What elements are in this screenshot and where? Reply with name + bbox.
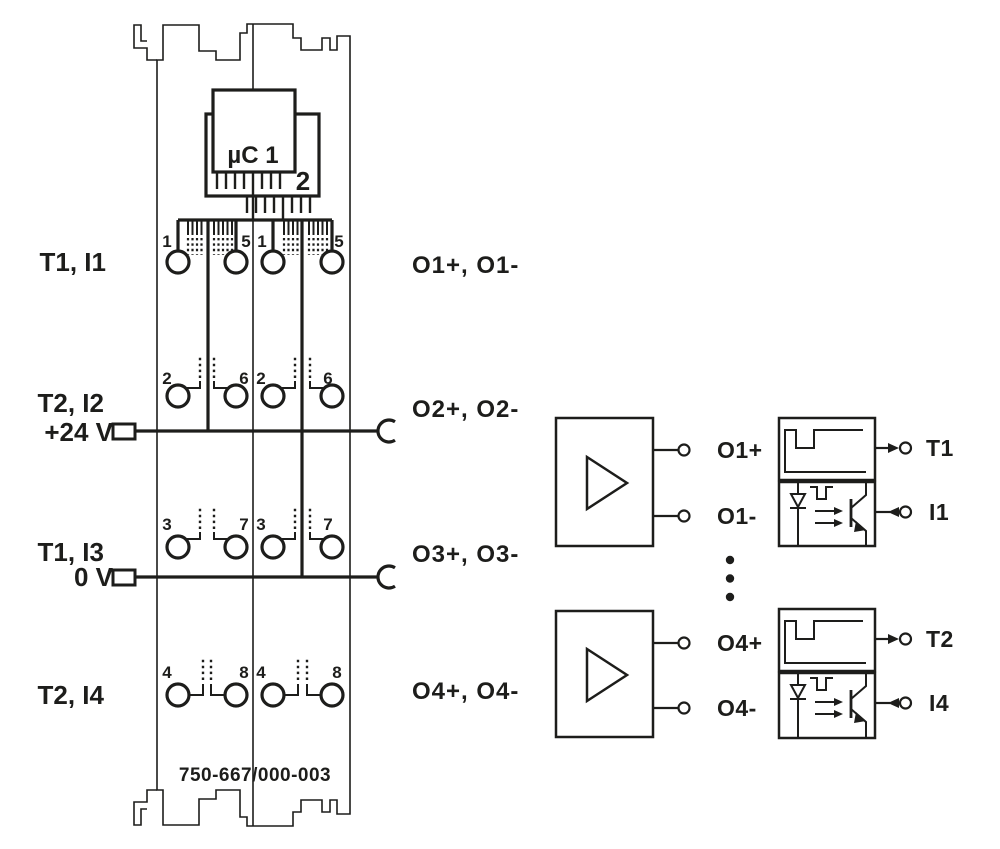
power-rail-0v	[113, 566, 395, 588]
uc-chip2-pins	[247, 196, 310, 213]
num-r2b: 6	[239, 369, 248, 388]
num-r1b: 5	[241, 232, 250, 251]
terminal-1-left	[167, 251, 189, 273]
i4-arrow-icon	[888, 698, 899, 708]
row3-contact-dotted	[200, 507, 310, 529]
channel1-amplifier: O1+ O1-	[556, 418, 763, 546]
channel1-optocoupler-block: I1	[779, 482, 949, 546]
label-output-o3: O3+, O3-	[412, 541, 519, 568]
terminal-8-left	[225, 684, 247, 706]
terminal-1-right	[262, 251, 284, 273]
t1-arrow-icon	[888, 443, 899, 453]
num-r4c: 4	[256, 663, 266, 682]
label-o4-minus: O4-	[717, 695, 757, 721]
row4-contact-dotted	[203, 659, 307, 680]
i1-pin	[900, 507, 911, 518]
microcontroller-block: µC 1 2	[206, 90, 319, 220]
t1-pin	[900, 443, 911, 454]
i4-pin	[900, 698, 911, 709]
left-signal-labels: T1, I1 T2, I2 +24 V T1, I3 0 V T2, I4	[38, 247, 114, 710]
output-labels: O1+, O1- O2+, O2- O3+, O3- O4+, O4-	[412, 252, 519, 705]
terminal-bus-row1	[178, 220, 332, 255]
num-r4d: 8	[332, 663, 341, 682]
label-o4-plus: O4+	[717, 630, 763, 656]
uc-label: µC 1	[227, 142, 278, 169]
amp2-pin-minus	[679, 703, 690, 714]
num-r4a: 4	[162, 663, 172, 682]
top-left-clip-hook	[134, 25, 157, 60]
power-rail-24v	[113, 420, 395, 442]
amp2-pin-plus	[679, 638, 690, 649]
t2-arrow-icon	[888, 634, 899, 644]
terminal-4-right	[262, 684, 284, 706]
row2-contact-dotted	[200, 356, 310, 378]
ellipsis-dot	[726, 574, 734, 582]
pulse1-box	[779, 418, 875, 480]
label-output-o2: O2+, O2-	[412, 396, 519, 423]
row3-contact-hooks	[185, 532, 325, 539]
channel4-pulse-block: T2	[779, 609, 954, 671]
num-r4b: 8	[239, 663, 248, 682]
terminal-5-left	[225, 251, 247, 273]
channel1-pulse-block: T1	[779, 418, 954, 480]
num-r2d: 6	[323, 369, 332, 388]
label-rail-24v: +24 V	[44, 417, 113, 447]
channel4-amplifier: O4+ O4-	[556, 611, 763, 737]
ellipsis-dot	[726, 593, 734, 601]
terminal-contacts	[167, 251, 343, 706]
t2-pin	[900, 634, 911, 645]
label-row2-signals: T2, I2	[38, 388, 104, 418]
label-i1: I1	[929, 499, 949, 525]
terminal-5-right	[321, 251, 343, 273]
ellipsis-dot	[726, 556, 734, 564]
num-r3b: 7	[239, 515, 248, 534]
label-rail-0v: 0 V	[74, 562, 114, 592]
part-number: 750-667/000-003	[179, 765, 331, 786]
jumper-contact-0v	[378, 566, 395, 588]
label-t1: T1	[926, 435, 954, 461]
label-i4: I4	[929, 690, 949, 716]
label-output-o4: O4+, O4-	[412, 678, 519, 705]
diagram-svg: µC 1 2	[0, 0, 1000, 849]
uc2-label: 2	[296, 166, 310, 196]
amp1-pin-plus	[679, 445, 690, 456]
channels-ellipsis	[726, 556, 734, 601]
num-r2c: 2	[256, 369, 265, 388]
num-r1d: 5	[334, 232, 343, 251]
amp1-pin-minus	[679, 511, 690, 522]
label-t2: T2	[926, 626, 954, 652]
terminal-8-right	[321, 684, 343, 706]
num-r3a: 3	[162, 515, 171, 534]
row4-contact-hooks	[189, 684, 321, 695]
label-o1-minus: O1-	[717, 503, 757, 529]
channel4-optocoupler-block: I4	[779, 673, 949, 738]
pulse2-box	[779, 609, 875, 671]
terminal-lug-24v	[113, 424, 135, 439]
label-row4-signals: T2, I4	[38, 680, 105, 710]
terminal-lug-0v	[113, 570, 135, 585]
i1-arrow-icon	[888, 507, 899, 517]
num-r1c: 1	[257, 232, 266, 251]
terminal-4-left	[167, 684, 189, 706]
num-r1a: 1	[162, 232, 171, 251]
wiring-diagram: µC 1 2	[0, 0, 1000, 849]
num-r3d: 7	[323, 515, 332, 534]
label-row1-signals: T1, I1	[40, 247, 106, 277]
bottom-left-clip-hook	[134, 790, 157, 825]
num-r3c: 3	[256, 515, 265, 534]
label-o1-plus: O1+	[717, 437, 763, 463]
jumper-contact-24v	[378, 420, 395, 442]
num-r2a: 2	[162, 369, 171, 388]
row2-contact-hooks	[185, 381, 325, 388]
label-output-o1: O1+, O1-	[412, 252, 519, 279]
